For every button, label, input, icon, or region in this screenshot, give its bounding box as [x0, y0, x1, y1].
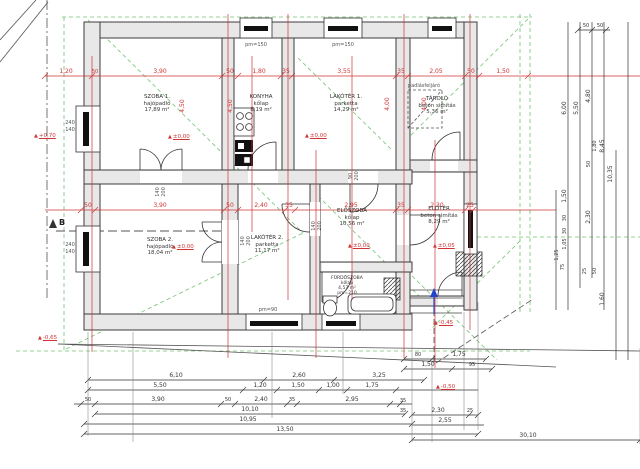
- window-size-label: 140: [65, 249, 75, 255]
- door-size-label: 200: [161, 187, 167, 197]
- dim-label: 1,25: [554, 249, 560, 260]
- level-marker: ▲±0,00: [305, 133, 327, 139]
- dim-label: 50: [592, 268, 598, 274]
- dim-label: 3,90: [151, 396, 165, 403]
- dim-label: 5,50: [153, 382, 167, 389]
- dim-label: 3,90: [153, 202, 167, 209]
- level-marker: ▲-0,45: [434, 320, 453, 326]
- level-flag-icon: ▲: [168, 134, 172, 140]
- dim-label: 10,10: [241, 406, 258, 413]
- room-label-tarolo: TÁROLÓ beton simítás 5,36 m²: [408, 96, 466, 116]
- room-label-lakoter-1: LAKÓTÉR 1. parketta 14,29 m²: [316, 94, 376, 114]
- dim-label: 2,60: [292, 372, 306, 379]
- dim-label: 50: [92, 69, 98, 75]
- floor-plan-drawing: 1,20 50 3,90 50 1,80 35 3,55 35 2,05 50 …: [0, 0, 640, 469]
- dim-label: 50: [597, 23, 603, 29]
- bottom-dimension-labels: 6,10 2,60 3,25 80 1,75 5,50 1,20 1,50 1,…: [85, 351, 537, 439]
- red-vertical-dims: 4,50 4,50 4,00 4,00: [179, 97, 428, 113]
- dim-label: 1,75: [365, 382, 379, 389]
- dim-label: 1,50: [421, 361, 435, 368]
- dim-label: 1,50: [291, 382, 305, 389]
- dim-label: 50: [586, 161, 592, 167]
- dim-label: 50: [467, 68, 475, 75]
- dim-label: 13,50: [276, 426, 293, 433]
- level-flag-icon: ▲: [305, 133, 309, 139]
- dim-label: 30: [562, 215, 568, 221]
- parapet-label: pm=90: [259, 307, 278, 313]
- dim-label: 30: [562, 228, 568, 234]
- dim-label: 3,90: [153, 68, 167, 75]
- room-area: 14,29 m²: [316, 107, 376, 114]
- dim-label: 4,00: [384, 97, 391, 111]
- dim-label: 35: [289, 397, 295, 403]
- parapet-label: pm=150: [332, 42, 354, 48]
- level-marker: ▲-0,65: [38, 335, 57, 341]
- dim-label: 4,80: [585, 89, 592, 103]
- dim-label: 35: [282, 68, 290, 75]
- level-flag-icon: ▲: [348, 243, 352, 249]
- right-dimension-labels: 50 50 6,00 5,50 4,80 1,80 8,45 50 10,35 …: [554, 23, 614, 306]
- level-value: -0,50: [441, 384, 455, 390]
- dim-label: 1,75: [452, 351, 466, 358]
- level-flag-icon: ▲: [172, 244, 176, 250]
- dim-label: 2,55: [438, 417, 452, 424]
- level-flag-icon: ▲: [34, 133, 38, 139]
- parapet-label: pm=150: [245, 42, 267, 48]
- window-size-label: 240: [65, 120, 75, 126]
- level-flag-icon: ▲: [433, 243, 437, 249]
- dim-label: 2,30: [431, 407, 445, 414]
- dim-label: 80: [415, 352, 421, 358]
- level-flag-icon: ▲: [434, 320, 438, 326]
- top-dimension-chain: 1,20 50 3,90 50 1,80 35 3,55 35 2,05 50 …: [59, 68, 510, 75]
- level-marker: ▲+0,70: [34, 133, 56, 139]
- dim-label: 25: [466, 202, 474, 209]
- level-flag-icon: ▲: [436, 384, 440, 390]
- dim-label: 1,80: [252, 68, 266, 75]
- level-value: ±0,00: [177, 244, 194, 250]
- dim-label: 1,60: [599, 292, 606, 306]
- window-size-label: 140: [65, 127, 75, 133]
- dim-label: 1,05: [562, 238, 568, 249]
- toilet-icon: [323, 296, 337, 316]
- dim-label: 2,30: [585, 210, 592, 224]
- level-marker: ▲±0,00: [348, 243, 370, 249]
- dim-label: 6,10: [169, 372, 183, 379]
- floor-plan-canvas: 1,20 50 3,90 50 1,80 35 3,55 35 2,05 50 …: [0, 0, 640, 469]
- level-marker: ▲-0,50: [436, 384, 455, 390]
- dim-label: 10,95: [239, 416, 256, 423]
- dim-label: 35: [400, 408, 406, 414]
- dim-label: 2,40: [254, 202, 268, 209]
- kitchen-counter-icon: [235, 140, 253, 166]
- dim-label: 1,20: [253, 382, 267, 389]
- dim-label: 50: [85, 397, 91, 403]
- level-value: +0,70: [39, 133, 56, 139]
- room-area: 17,89 m²: [125, 107, 189, 114]
- room-label-furdoszoba: FÜRDŐSZOBA kőlap 4,57 m² pm=210: [318, 276, 376, 296]
- room-label-szoba-1: SZOBA 1. hajópadló 17,89 m²: [125, 94, 189, 114]
- door-size-label: 200: [354, 171, 360, 181]
- level-flag-icon: ▲: [38, 335, 42, 341]
- level-value: ±0,00: [173, 134, 190, 140]
- room-label-eloter: ELŐTÉR beton simítás 8,29 m²: [413, 206, 465, 226]
- room-area: 5,36 m²: [408, 109, 466, 116]
- dim-label: 35: [285, 202, 293, 209]
- dim-label: 1,00: [326, 382, 340, 389]
- room-label-eloszoba: ELŐSZOBA kőlap 10,56 m²: [322, 208, 382, 228]
- dim-label: 10,35: [607, 165, 614, 182]
- dim-label: 2,40: [254, 396, 268, 403]
- room-area: 8,19 m²: [233, 107, 289, 114]
- level-marker: ▲±0,05: [433, 243, 455, 249]
- level-value: -0,65: [43, 335, 57, 341]
- dim-label: 50: [225, 397, 231, 403]
- attic-access-label: padlásfeljáró: [408, 82, 440, 89]
- dim-label: 1,50: [561, 189, 568, 203]
- section-mark-label: B: [59, 218, 65, 227]
- dim-label: 35: [400, 398, 406, 404]
- section-arrow-icon: [49, 219, 57, 228]
- dim-label: 50: [226, 68, 234, 75]
- room-label-lakoter-2: LAKÓTÉR 2. parketta 11,17 m²: [237, 235, 297, 255]
- dim-label: 30,10: [519, 432, 536, 439]
- room-parapet: pm=210: [318, 291, 376, 296]
- level-value: -0,45: [439, 320, 453, 326]
- dim-label: 6,00: [561, 101, 568, 115]
- dim-label: 3,25: [372, 372, 386, 379]
- dim-label: 8,45: [599, 139, 606, 153]
- level-marker: ▲±0,00: [168, 134, 190, 140]
- room-label-konyha: KONYHA kőlap 8,19 m²: [233, 94, 289, 114]
- dim-label: 5,50: [573, 101, 580, 115]
- level-value: ±0,00: [353, 243, 370, 249]
- dim-label: 50: [583, 23, 589, 29]
- dim-label: 1,50: [496, 68, 510, 75]
- room-area: 18,04 m²: [128, 250, 192, 257]
- dim-label: 2,95: [345, 396, 359, 403]
- dim-label: 2,05: [429, 68, 443, 75]
- dim-label: 95: [469, 362, 475, 368]
- room-area: 8,29 m²: [413, 219, 465, 226]
- dim-label: 1,20: [59, 68, 73, 75]
- dim-label: 75: [560, 264, 566, 270]
- dim-label: 1,80: [592, 140, 598, 151]
- window-size-label: 240: [65, 242, 75, 248]
- dim-label: 50: [84, 202, 92, 209]
- dim-label: 25: [582, 268, 588, 274]
- level-value: ±0,00: [310, 133, 327, 139]
- level-value: ±0,05: [438, 243, 455, 249]
- dim-label: 3,55: [337, 68, 351, 75]
- room-area: 11,17 m²: [237, 248, 297, 255]
- dim-label: 25: [467, 408, 473, 414]
- bathtub-icon: [348, 294, 396, 314]
- dim-label: 35: [397, 68, 405, 75]
- room-area: 10,56 m²: [322, 221, 382, 228]
- dim-label: 50: [226, 202, 234, 209]
- level-marker: ▲±0,00: [172, 244, 194, 250]
- dim-label: 35: [397, 202, 405, 209]
